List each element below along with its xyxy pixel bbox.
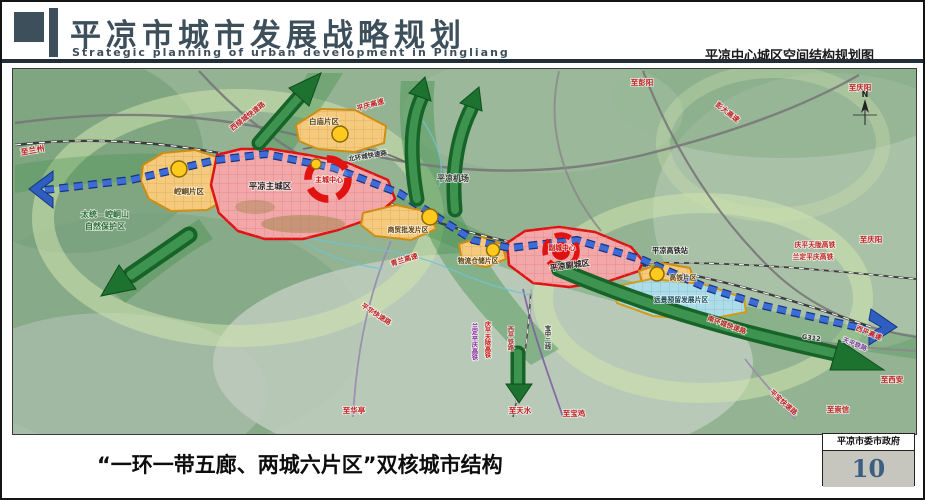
label-to-huating: 至华亭	[343, 405, 366, 415]
label-main-core: 主城中心	[315, 175, 343, 184]
label-district-wuliu: 物流仓储片区	[458, 256, 499, 265]
label-to-tianshui: 至天水	[509, 405, 532, 415]
slide-caption: “一环一带五廊、两城六片区”双核城市结构	[97, 449, 503, 479]
page-number: 10	[823, 451, 914, 487]
main-city-core-node	[311, 159, 321, 169]
label-to-pengyang: 至彭阳	[631, 77, 654, 87]
node-kongtong	[171, 161, 187, 177]
label-nature-reserve-1: 太统—崆峒山	[80, 209, 129, 219]
logo-bar	[49, 8, 58, 57]
logo-square	[14, 12, 44, 42]
node-shangmao	[422, 209, 438, 225]
map-svg: 至兰州 太统—崆峒山 自然保护区 崆峒片区 平凉主城区 主城中心 白庙片区 西绕…	[13, 69, 916, 434]
label-to-baoji: 至宝鸡	[563, 408, 586, 418]
label-to-qingyang-right: 至庆阳	[860, 234, 883, 244]
label-district-kongtong: 崆峒片区	[174, 186, 204, 196]
label-ldpq-hsr: 兰定平庆高铁	[793, 252, 834, 261]
built-area-patch	[235, 200, 275, 214]
footer-info-box: 平凉市委市政府 10	[822, 433, 915, 486]
slide-page: 平凉市城市发展战略规划 Strategic planning of urban …	[0, 0, 925, 500]
built-area-patch	[261, 215, 345, 233]
organization-name: 平凉市委市政府	[823, 434, 914, 451]
label-nature-reserve-2: 自然保护区	[85, 221, 125, 231]
label-airport: 平凉机场	[437, 173, 469, 183]
label-to-chongxin: 至崇信	[827, 404, 850, 414]
label-district-reserved: 远景预留发展片区	[654, 295, 709, 304]
label-to-xian: 至西安	[881, 374, 904, 384]
label-district-gaotie: 高铁片区	[669, 273, 696, 282]
page-subtitle-english: Strategic planning of urban development …	[72, 46, 510, 59]
node-baimiao	[332, 126, 348, 142]
label-ldpq-hsr-vertical: 兰定平庆高铁	[471, 322, 479, 361]
header-divider	[2, 59, 925, 63]
node-wuliu	[487, 244, 500, 257]
compass-n-letter: N	[862, 90, 869, 99]
label-qptl-hsr-vertical: 庆平天陇高铁	[484, 320, 492, 359]
label-sub-core: 副城中心	[548, 243, 575, 252]
label-xiping-railway-vertical: 西平铁路	[507, 325, 514, 352]
planning-map: 至兰州 太统—崆峒山 自然保护区 崆峒片区 平凉主城区 主城中心 白庙片区 西绕…	[12, 68, 917, 435]
label-hsr-station: 平凉高铁站	[652, 246, 689, 255]
node-gaotie	[650, 267, 664, 281]
label-district-baimiao: 白庙片区	[309, 116, 339, 126]
label-main-city: 平凉主城区	[249, 181, 292, 192]
label-qptl-hsr: 庆平天陇高铁	[795, 240, 836, 249]
label-district-shangmao: 商贸批发片区	[388, 225, 429, 234]
label-baozhong-line-vertical: 宝中二线	[544, 324, 551, 351]
